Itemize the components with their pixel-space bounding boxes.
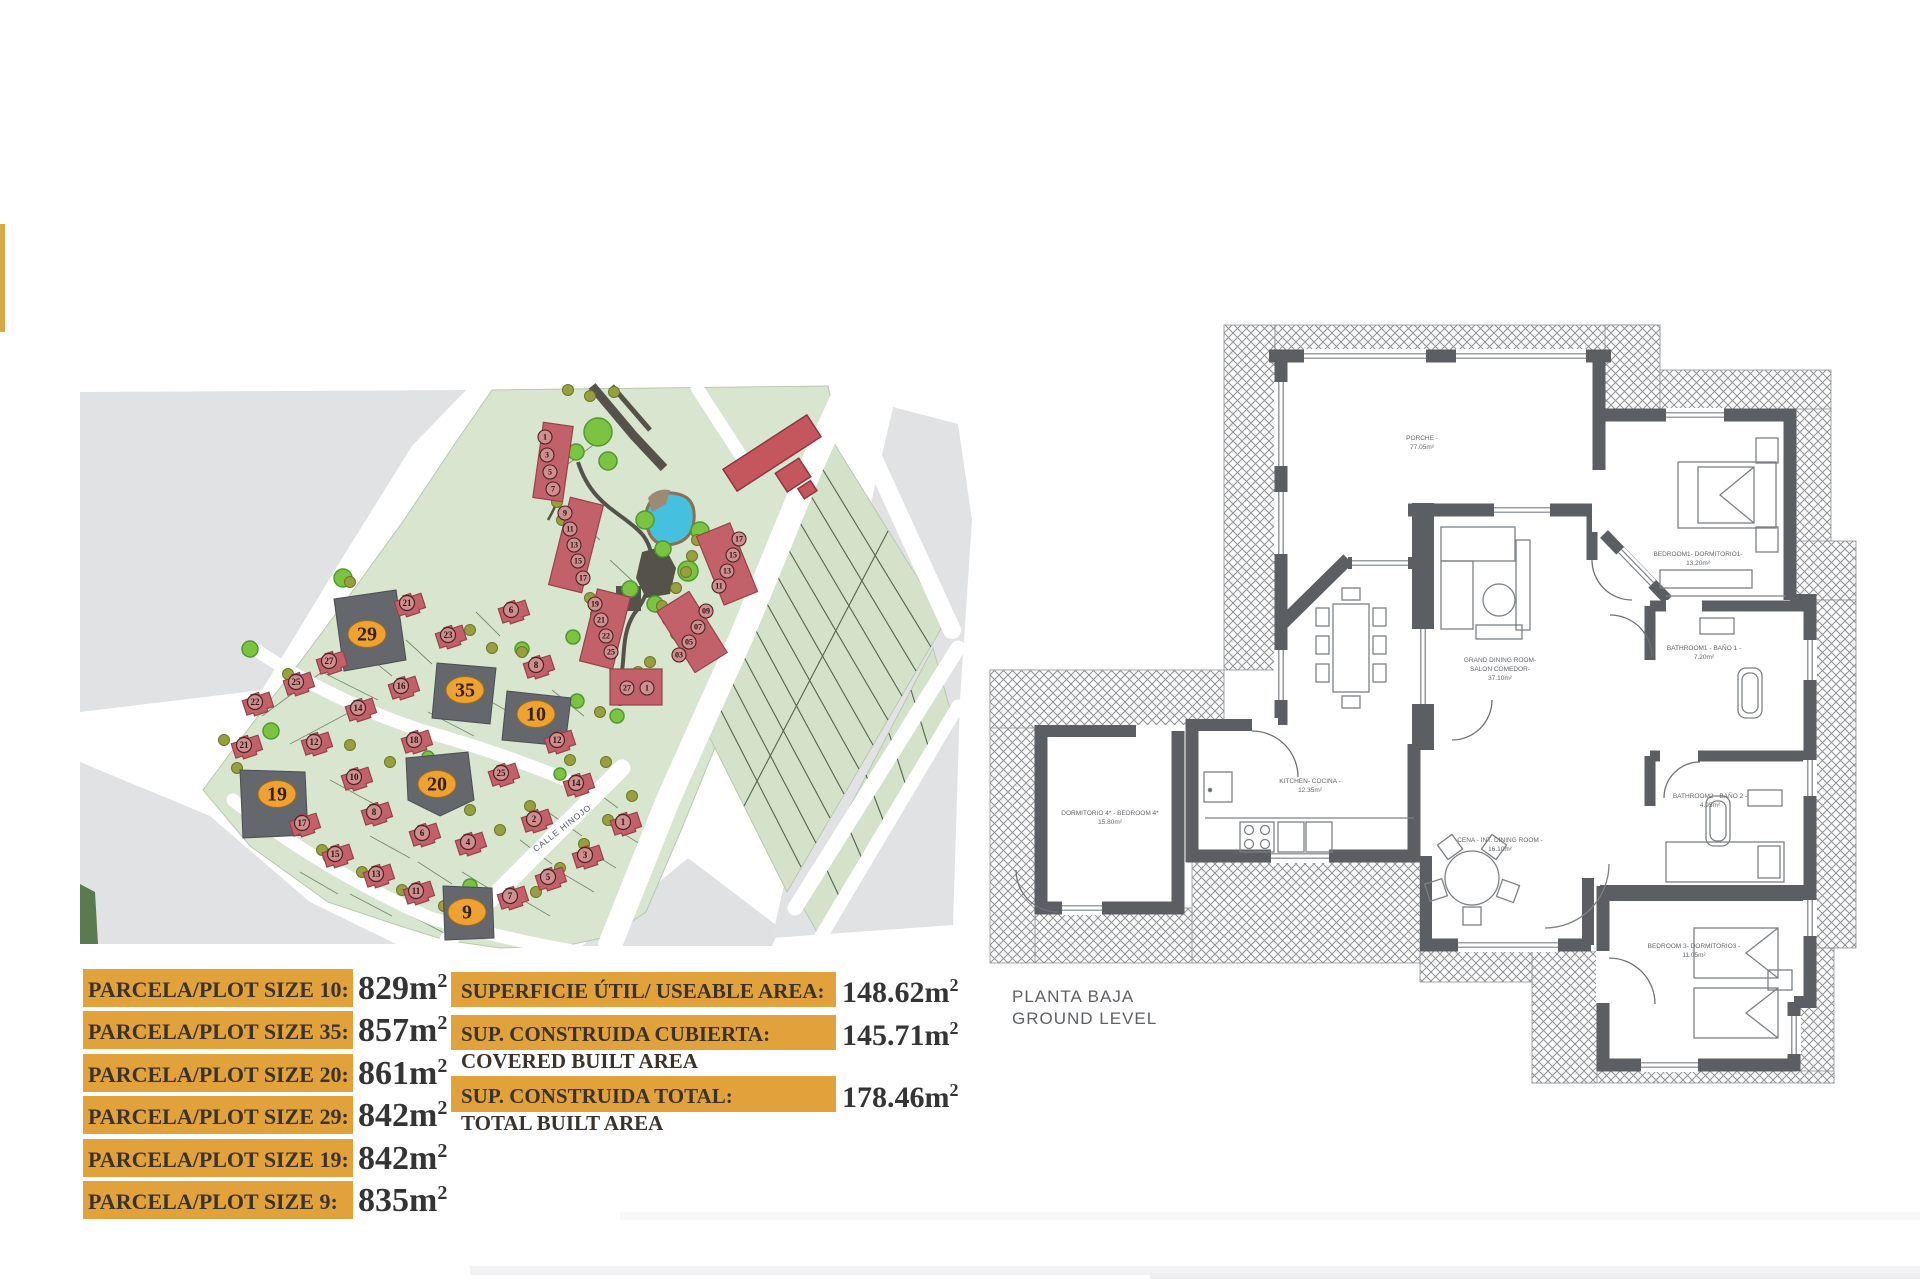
svg-text:1: 1: [645, 684, 649, 693]
svg-text:842m2: 842m2: [358, 1097, 447, 1134]
svg-text:13: 13: [723, 567, 731, 576]
svg-text:07: 07: [694, 623, 702, 632]
svg-text:7: 7: [551, 485, 555, 494]
svg-text:77.05m²: 77.05m²: [1410, 444, 1435, 451]
svg-text:16: 16: [397, 681, 407, 691]
svg-text:27: 27: [325, 656, 335, 666]
svg-text:20: 20: [427, 774, 447, 796]
svg-text:13: 13: [570, 541, 578, 550]
svg-text:15: 15: [331, 849, 341, 859]
svg-text:PARCELA/PLOT SIZE 19:: PARCELA/PLOT SIZE 19:: [88, 1147, 349, 1172]
svg-text:19: 19: [591, 600, 599, 609]
svg-text:PARCELA/PLOT SIZE 20:: PARCELA/PLOT SIZE 20:: [88, 1062, 349, 1087]
svg-text:27: 27: [623, 684, 631, 693]
svg-text:145.71m2: 145.71m2: [842, 1018, 959, 1052]
svg-text:21: 21: [403, 598, 413, 608]
svg-text:SUP. CONSTRUIDA CUBIERTA:: SUP. CONSTRUIDA CUBIERTA:: [461, 1022, 770, 1046]
svg-text:3: 3: [583, 850, 588, 860]
svg-text:BATHROOM1 - BAÑO 1 -: BATHROOM1 - BAÑO 1 -: [1667, 643, 1741, 652]
svg-text:12: 12: [553, 735, 563, 745]
svg-text:842m2: 842m2: [358, 1140, 447, 1177]
svg-text:17: 17: [579, 574, 587, 583]
svg-text:12: 12: [310, 737, 320, 747]
svg-text:10: 10: [526, 704, 546, 726]
svg-text:PARCELA/PLOT SIZE 29:: PARCELA/PLOT SIZE 29:: [88, 1104, 349, 1129]
svg-text:15: 15: [729, 551, 737, 560]
svg-text:SALON COMEDOR-: SALON COMEDOR-: [1470, 666, 1530, 673]
svg-text:13: 13: [372, 869, 382, 879]
svg-text:PARCELA/PLOT SIZE 9:: PARCELA/PLOT SIZE 9:: [88, 1189, 338, 1214]
svg-text:35: 35: [455, 680, 475, 702]
svg-text:COVERED BUILT AREA: COVERED BUILT AREA: [461, 1049, 699, 1073]
svg-text:17: 17: [735, 535, 743, 544]
svg-text:4.95m²: 4.95m²: [1700, 802, 1721, 809]
svg-text:19: 19: [267, 784, 287, 806]
svg-text:1: 1: [621, 817, 626, 827]
svg-text:829m2: 829m2: [358, 970, 447, 1007]
svg-text:2: 2: [532, 814, 537, 824]
svg-text:PARCELA/PLOT SIZE 10:: PARCELA/PLOT SIZE 10:: [88, 977, 349, 1002]
svg-text:22: 22: [251, 697, 261, 707]
svg-text:11: 11: [566, 525, 574, 534]
svg-text:857m2: 857m2: [358, 1012, 447, 1049]
svg-text:KITCHEN- COCINA -: KITCHEN- COCINA -: [1279, 778, 1340, 785]
svg-text:BEDROOM 3- DORMITORIO3 -: BEDROOM 3- DORMITORIO3 -: [1648, 943, 1741, 950]
svg-text:9: 9: [563, 509, 567, 518]
svg-text:14: 14: [572, 778, 582, 788]
svg-text:4: 4: [466, 837, 471, 847]
svg-text:9: 9: [462, 902, 472, 924]
svg-text:25: 25: [497, 768, 507, 778]
svg-text:25: 25: [292, 677, 302, 687]
svg-text:29: 29: [357, 624, 377, 646]
svg-text:CENA - INT. DINING ROOM -: CENA - INT. DINING ROOM -: [1457, 837, 1543, 844]
svg-text:6: 6: [509, 605, 514, 615]
svg-text:5: 5: [548, 468, 552, 477]
svg-text:6: 6: [420, 828, 425, 838]
svg-text:3: 3: [545, 451, 549, 460]
svg-text:7: 7: [508, 891, 513, 901]
svg-text:09: 09: [702, 607, 710, 616]
svg-text:PARCELA/PLOT SIZE 35:: PARCELA/PLOT SIZE 35:: [88, 1019, 349, 1044]
svg-text:GROUND LEVEL: GROUND LEVEL: [1012, 1009, 1157, 1028]
svg-text:BEDROOM1- DORMITORIO1-: BEDROOM1- DORMITORIO1-: [1653, 551, 1742, 558]
svg-text:21: 21: [597, 616, 605, 625]
svg-text:5: 5: [546, 872, 551, 882]
svg-text:8: 8: [372, 807, 377, 817]
svg-text:8: 8: [534, 660, 539, 670]
svg-text:15.80m²: 15.80m²: [1098, 819, 1123, 826]
svg-text:861m2: 861m2: [358, 1055, 447, 1092]
svg-text:14: 14: [354, 703, 364, 713]
svg-text:11: 11: [715, 582, 723, 591]
svg-text:25: 25: [607, 648, 615, 657]
svg-text:16.10m²: 16.10m²: [1488, 846, 1513, 853]
svg-text:835m2: 835m2: [358, 1182, 447, 1219]
svg-text:10: 10: [350, 772, 360, 782]
svg-text:BATHROOM2 - BAÑO 2 -: BATHROOM2 - BAÑO 2 -: [1673, 791, 1747, 800]
svg-text:18: 18: [410, 735, 420, 745]
svg-text:05: 05: [685, 638, 693, 647]
svg-text:PLANTA BAJA: PLANTA BAJA: [1012, 987, 1134, 1006]
svg-text:11: 11: [412, 886, 421, 896]
svg-text:1: 1: [543, 433, 547, 442]
svg-text:12.35m²: 12.35m²: [1298, 787, 1323, 794]
svg-text:11.05m²: 11.05m²: [1682, 952, 1706, 959]
svg-text:178.46m2: 178.46m2: [842, 1080, 959, 1114]
svg-text:17: 17: [298, 818, 308, 828]
svg-text:TOTAL BUILT AREA: TOTAL BUILT AREA: [461, 1111, 664, 1135]
svg-text:148.62m2: 148.62m2: [842, 975, 959, 1009]
svg-text:23: 23: [444, 630, 454, 640]
svg-text:SUP. CONSTRUIDA TOTAL:: SUP. CONSTRUIDA TOTAL:: [461, 1084, 733, 1108]
svg-text:15: 15: [574, 557, 582, 566]
svg-text:37.10m²: 37.10m²: [1488, 675, 1513, 682]
svg-text:7.20m²: 7.20m²: [1694, 654, 1715, 661]
svg-text:DORMITORIO 4* - BEDROOM 4*: DORMITORIO 4* - BEDROOM 4*: [1061, 810, 1159, 817]
svg-text:PORCHE -: PORCHE -: [1406, 435, 1438, 442]
svg-text:03: 03: [675, 651, 683, 660]
svg-text:13.20m²: 13.20m²: [1686, 560, 1711, 567]
svg-text:SUPERFICIE ÚTIL/ USEABLE AREA:: SUPERFICIE ÚTIL/ USEABLE AREA:: [461, 979, 825, 1003]
svg-text:GRAND DINING ROOM-: GRAND DINING ROOM-: [1464, 657, 1536, 664]
svg-text:21: 21: [240, 740, 250, 750]
svg-text:22: 22: [602, 632, 610, 641]
